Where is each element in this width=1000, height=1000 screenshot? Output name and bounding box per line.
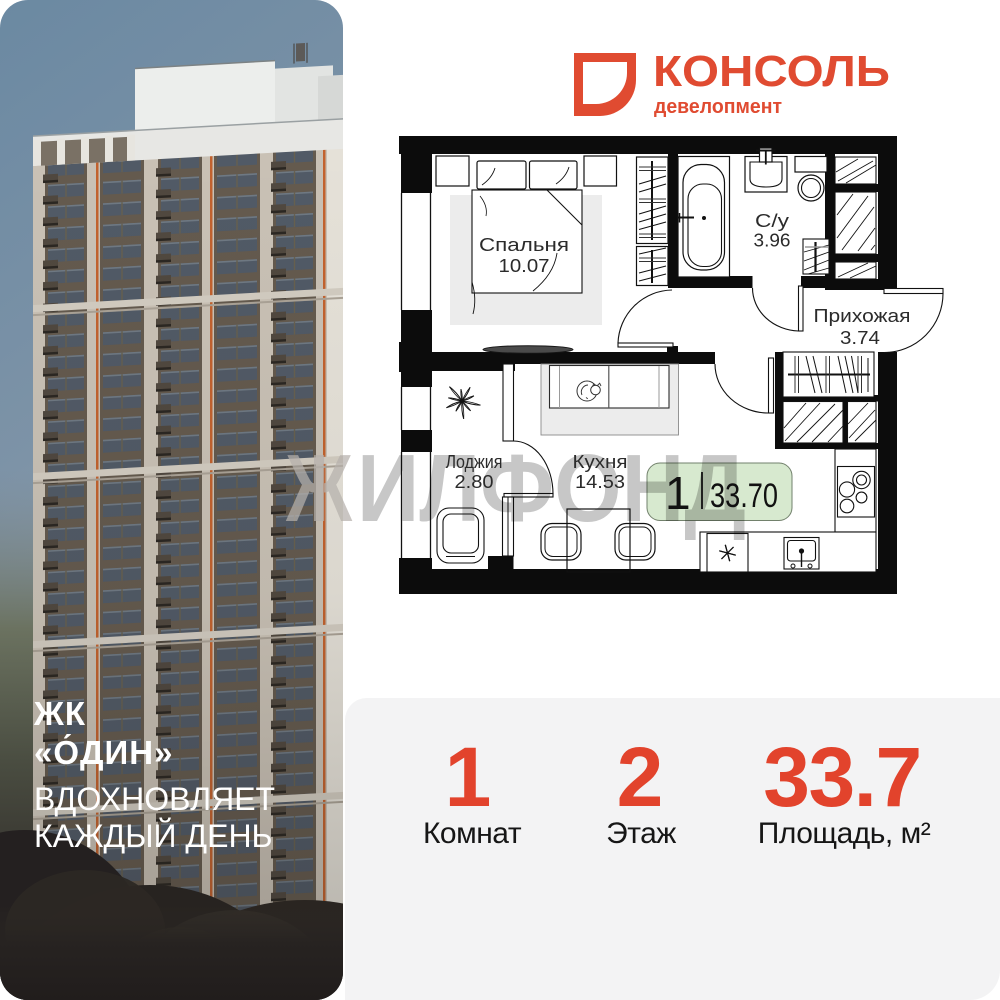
svg-text:3.96: 3.96 — [754, 231, 791, 251]
svg-text:Кухня: Кухня — [573, 452, 628, 472]
svg-text:1: 1 — [665, 467, 691, 519]
svg-text:С/у: С/у — [755, 211, 789, 231]
svg-text:2.80: 2.80 — [455, 472, 494, 492]
svg-text:Прихожая: Прихожая — [814, 306, 911, 326]
svg-text:3.74: 3.74 — [840, 328, 880, 348]
svg-text:Лоджия: Лоджия — [446, 452, 503, 472]
svg-text:10.07: 10.07 — [499, 256, 550, 276]
svg-text:33.70: 33.70 — [710, 477, 778, 515]
svg-text:14.53: 14.53 — [575, 472, 625, 492]
svg-text:Спальня: Спальня — [479, 235, 569, 255]
